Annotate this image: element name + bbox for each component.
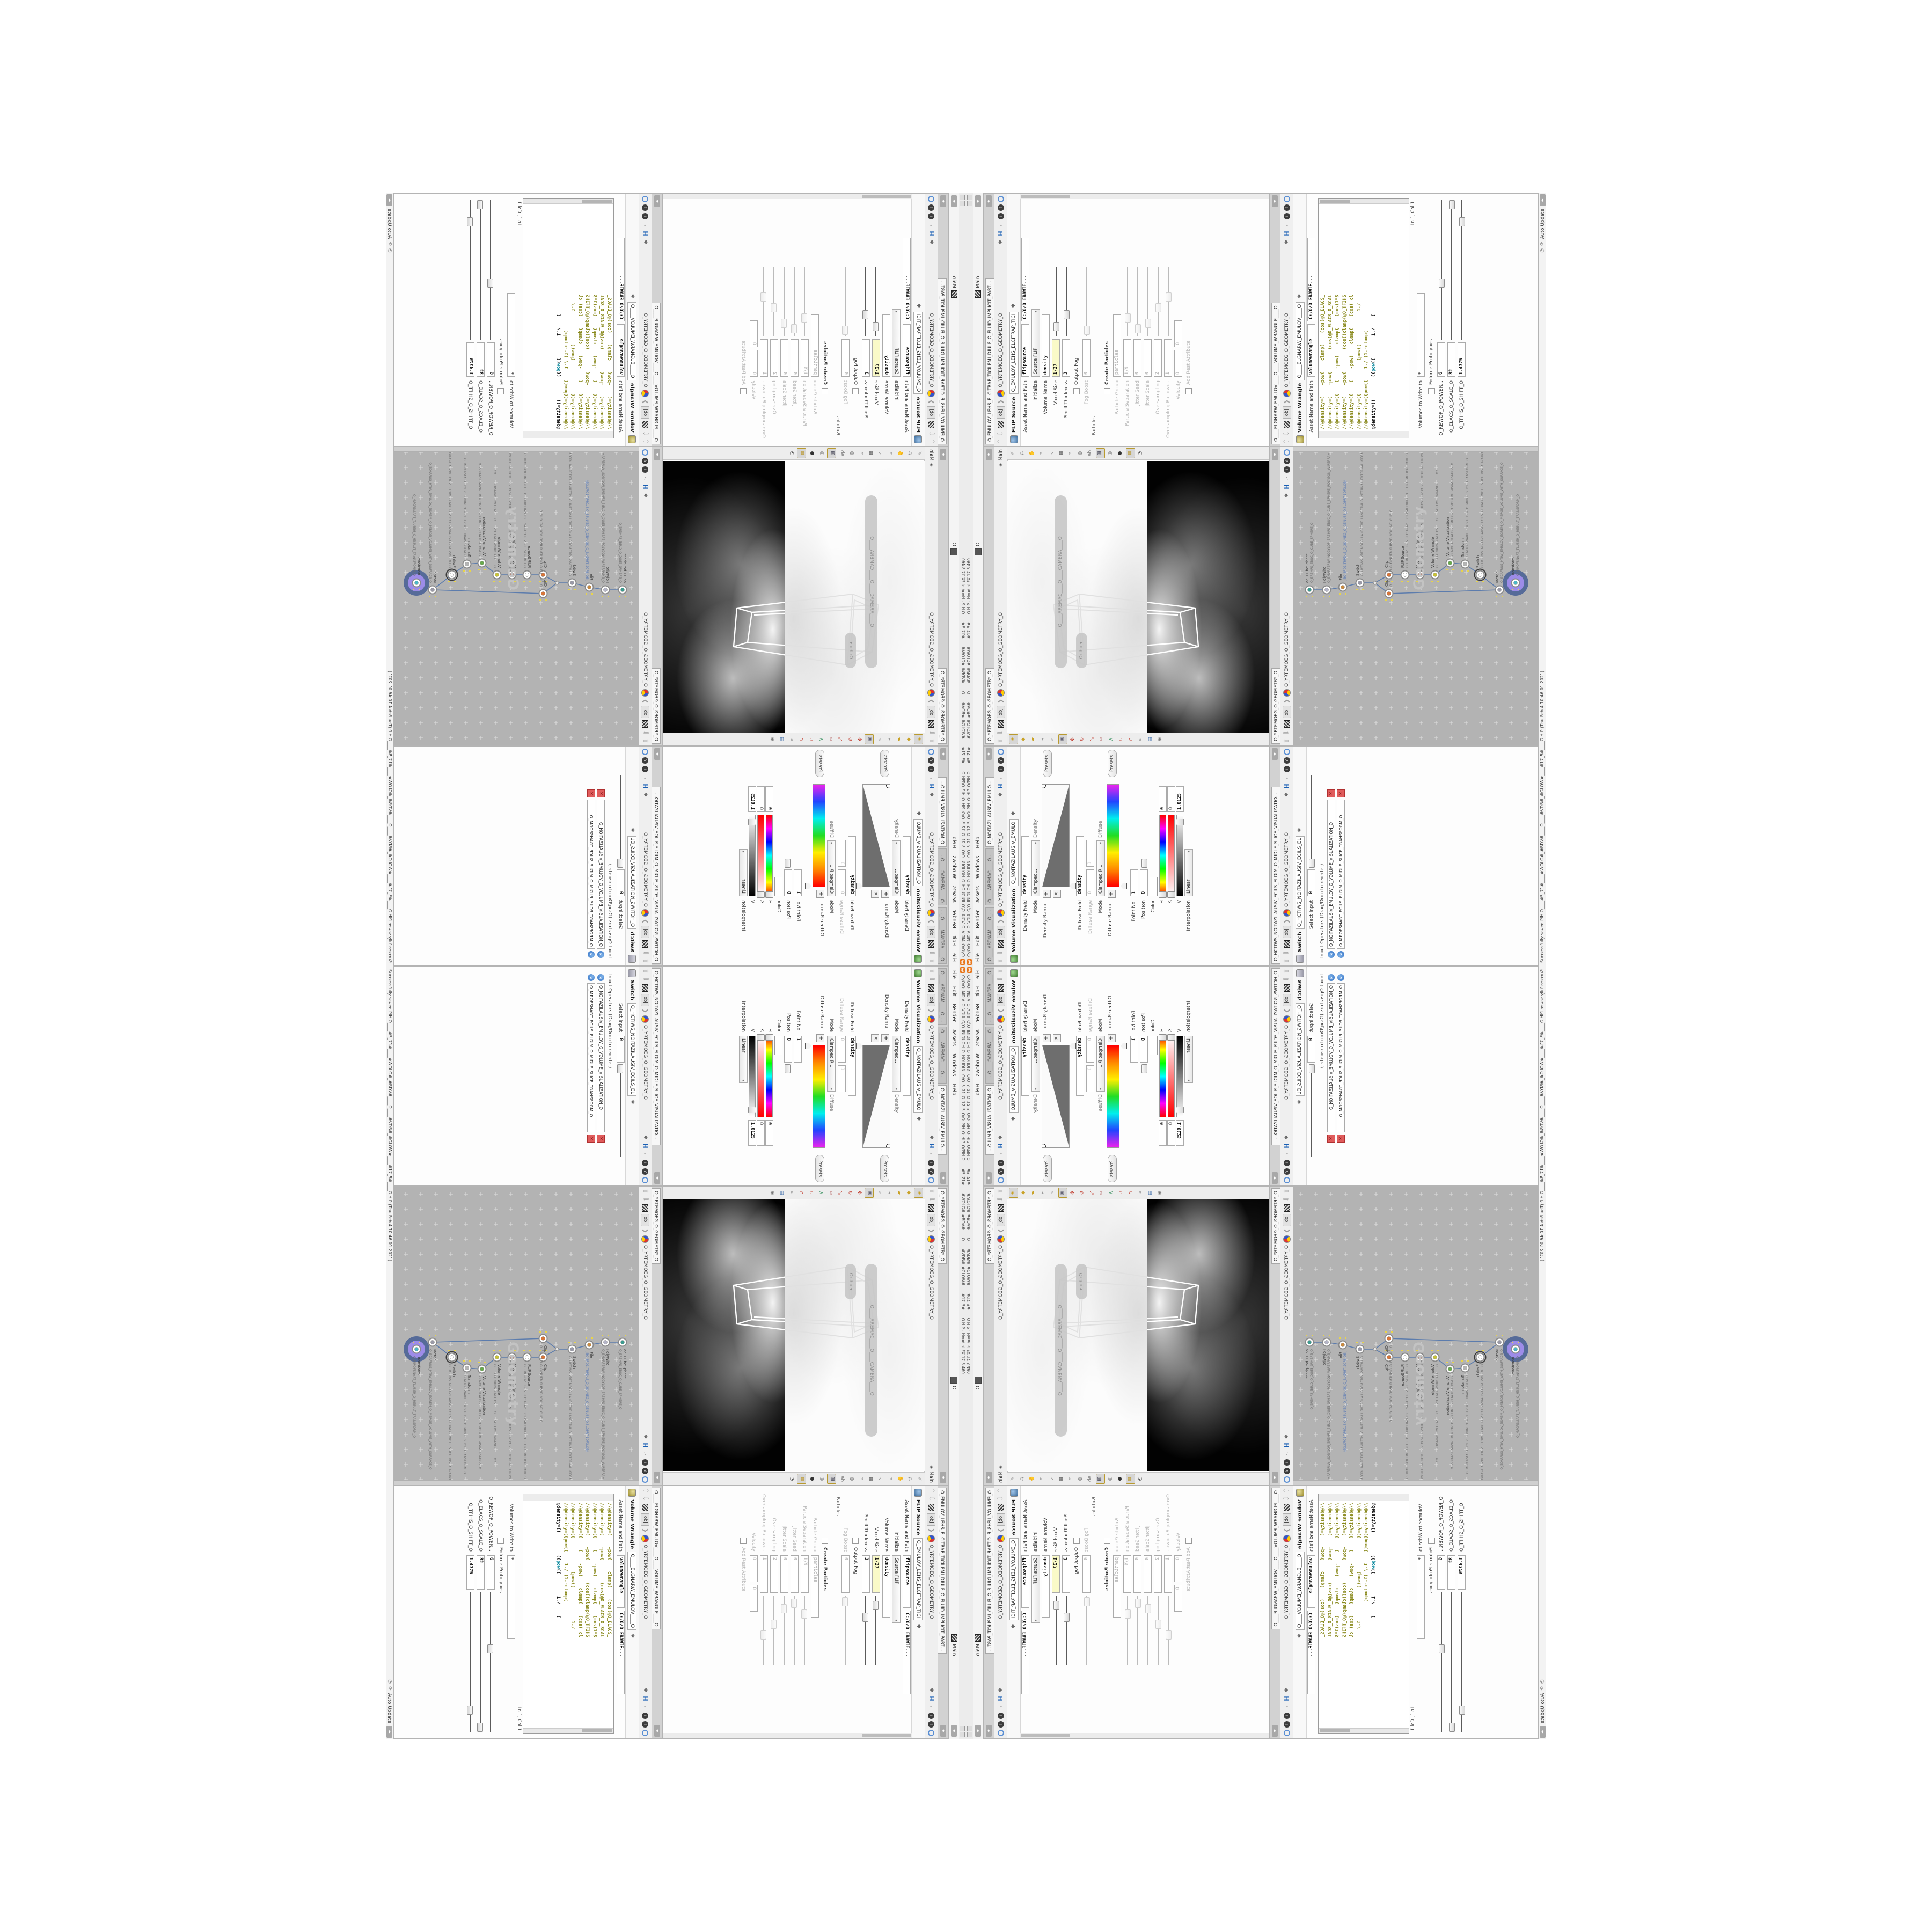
param-slider[interactable] (1135, 267, 1140, 336)
target-icon[interactable] (928, 196, 934, 202)
pinwheel-icon[interactable] (1283, 1535, 1291, 1542)
pane-splitter-icon[interactable]: ◂▸ (986, 195, 992, 207)
position-slider[interactable] (786, 797, 791, 867)
point-no-field[interactable]: 1 (1130, 1036, 1138, 1063)
houdini-h-icon[interactable]: H (998, 1695, 1004, 1702)
camera-pill[interactable]: O____AREMAC____O____CAMERA____O (1055, 495, 1067, 668)
param-field[interactable]: 0 (1174, 1555, 1182, 1582)
ortho-pill[interactable]: Ortho ▾ (1076, 1264, 1087, 1299)
pane-splitter-icon[interactable]: ◂▸ (986, 1472, 992, 1483)
param-field[interactable]: 0 (1082, 339, 1091, 377)
info-icon[interactable]: i (642, 766, 648, 772)
asset-name-field[interactable]: volumewrangle (617, 324, 625, 377)
pane-splitter-icon[interactable]: ◂▸ (1272, 1172, 1278, 1184)
update-mode-selector[interactable]: Auto Update (387, 209, 392, 239)
param-field[interactable]: 1.4375 (1458, 1555, 1466, 1590)
menu-splitter[interactable]: ◂▸ (950, 1725, 958, 1737)
hue-field[interactable]: 0 (766, 1120, 774, 1146)
breadcrumb-path[interactable]: O_YRTEMOEG_O_GEOMETRY_O (642, 1245, 648, 1320)
checkbox[interactable] (498, 1538, 504, 1544)
diffuse-range-min[interactable]: 0 (838, 1036, 846, 1063)
param-field[interactable]: 6 (1437, 342, 1445, 377)
nav-down-icon[interactable]: ⇩ (998, 1496, 1004, 1502)
pinwheel-icon[interactable] (927, 909, 935, 917)
info-icon[interactable]: i (1284, 1160, 1290, 1166)
dark-sphere-icon[interactable]: ● (808, 449, 816, 458)
reorder-arrow-icon[interactable]: ◂ (1337, 951, 1344, 958)
hue-slider[interactable] (766, 815, 773, 896)
breadcrumb-root[interactable]: obj (997, 406, 1005, 419)
param-field[interactable]: 1/27 (872, 339, 880, 377)
nav-up-icon[interactable]: ⇧ (1284, 1488, 1290, 1494)
tab-volume-wrangle[interactable]: O____ELGNARW_EMULOV____O____VOLUME_WRANG… (1271, 1488, 1280, 1629)
scale-tool-icon[interactable]: ⤡ (1088, 735, 1096, 744)
input-operator-field[interactable]: O_NOITAZILAUSIV_EMULOV_O_VOLUME_VISUALIZ… (1327, 800, 1335, 949)
nav-down-icon[interactable]: ⇩ (928, 430, 934, 436)
presets-button[interactable]: Presets (815, 750, 824, 777)
menu-splitter[interactable]: ◂▸ (974, 195, 982, 207)
help-icon[interactable]: ? (642, 1721, 648, 1728)
select-input-field[interactable]: 0 (617, 1036, 625, 1063)
density-field[interactable]: density (903, 1036, 911, 1096)
image-plane-icon[interactable]: ▧ (827, 448, 836, 458)
nav-down-icon[interactable]: ⇩ (1284, 976, 1290, 982)
info-icon[interactable]: i (998, 766, 1004, 772)
target-icon[interactable] (1284, 196, 1290, 202)
checkbox[interactable] (1073, 1538, 1080, 1544)
param-slider[interactable] (1084, 267, 1089, 336)
info-icon[interactable]: i (642, 466, 648, 473)
tab-volume-visualization[interactable]: O_NOITAZILAUSIV_EMULOV_O_VOLUME_VISUALIZ… (985, 1085, 994, 1155)
select-input-field[interactable]: 0 (617, 869, 625, 896)
param-field[interactable]: 2 (770, 339, 778, 377)
ramp-add-button[interactable]: ✚ (816, 890, 824, 898)
tab-network[interactable]: O_YRTEMOEG_O_GEOMETRY_O (1271, 1188, 1280, 1264)
breadcrumb-root[interactable]: obj (641, 406, 649, 419)
density-ramp-widget[interactable] (1042, 784, 1070, 887)
desktop-tab-main[interactable]: Main (974, 276, 982, 298)
menu-edit[interactable]: Edit (975, 936, 981, 946)
param-field[interactable]: flipsource (903, 1555, 911, 1608)
density-mode-dropdown[interactable]: Clamped... (1031, 840, 1040, 896)
param-field[interactable]: 1.4375 (466, 1555, 474, 1590)
flip-scrollbar[interactable] (663, 194, 912, 199)
ramp-marker-icon[interactable] (1121, 883, 1127, 889)
snap-point-icon[interactable]: ∩ (797, 735, 805, 744)
ramp-handle[interactable] (1042, 1144, 1046, 1148)
import-icon[interactable]: ◈ (914, 1188, 923, 1198)
pane-splitter-icon[interactable]: ◂▸ (1272, 1472, 1278, 1483)
pinwheel-icon[interactable] (1283, 689, 1291, 697)
param-field[interactable]: flipsource (1021, 1555, 1029, 1608)
target-icon[interactable] (1284, 749, 1290, 755)
node-name-field[interactable]: O____ELGNARW_EMULOV____O (628, 1552, 637, 1630)
param-slider[interactable] (1439, 1592, 1444, 1732)
point-no-field[interactable]: 1 (1130, 869, 1138, 896)
checkbox[interactable] (498, 388, 504, 394)
help-icon[interactable]: ? (928, 1168, 934, 1175)
nav-down-icon[interactable]: ⇩ (998, 730, 1004, 736)
splitter-grip-icon[interactable]: ◂▸ (1540, 1726, 1546, 1738)
render-view-icon[interactable]: ◉ (768, 735, 776, 744)
magnifier-icon[interactable]: ⌕ (642, 1704, 648, 1710)
asset-path-field[interactable]: C:/O/O_ERAWTF... (1307, 1611, 1315, 1694)
breadcrumb-path[interactable]: O_YRTEMOEG_O_GEOMETRY_O (998, 1025, 1004, 1100)
ruler-icon[interactable]: ⌗ (1038, 449, 1046, 458)
param-field[interactable]: 1.4375 (466, 342, 474, 377)
reorder-arrow-icon[interactable]: ◂ (598, 974, 605, 981)
param-slider[interactable] (468, 200, 473, 340)
menu-render[interactable]: Render (951, 1004, 957, 1022)
param-slider[interactable] (488, 200, 493, 340)
splitter-grip-icon[interactable]: ◂▸ (975, 195, 981, 207)
checkbox[interactable] (1428, 1538, 1435, 1544)
diffuse-range-min[interactable]: 0 (1086, 1036, 1094, 1063)
nav-up-icon[interactable]: ⇧ (998, 958, 1004, 964)
magnifier-icon[interactable]: ⌕ (928, 222, 934, 228)
info-icon[interactable]: i (1284, 1459, 1290, 1466)
pinwheel-icon[interactable] (997, 390, 1005, 397)
ramp-handle[interactable] (886, 1144, 890, 1148)
param-dropdown[interactable]: Source FLIP (892, 309, 901, 377)
houdini-h-icon[interactable]: H (998, 783, 1004, 789)
houdini-h-icon[interactable]: H (1284, 1143, 1290, 1149)
image-plane-icon[interactable]: ▧ (827, 1474, 836, 1484)
density-field[interactable]: density (903, 836, 911, 896)
hand-icon[interactable]: ✋ (896, 449, 904, 458)
select-arrow-icon[interactable]: ➢ (1049, 1188, 1057, 1197)
viewport-canvas[interactable]: O____AREMAC____O____CAMERA____O Ortho ▾ (1007, 1199, 1269, 1471)
select-input-field[interactable]: 0 (1307, 1036, 1315, 1063)
ruler-icon[interactable]: ⌗ (886, 449, 894, 458)
pinwheel-icon[interactable] (641, 689, 649, 697)
diffuse-ramp-widget[interactable] (813, 784, 825, 887)
refresh-icon[interactable]: ⟳ (386, 1686, 393, 1690)
param-slider[interactable] (1064, 1596, 1069, 1665)
param-field[interactable]: 0 (750, 1555, 758, 1582)
param-field[interactable]: C:/O/O_ERAWTF... (1021, 1611, 1029, 1694)
diffuse-mode-dropdown[interactable]: Clamped R... (828, 1036, 836, 1092)
breadcrumb-root[interactable]: obj (927, 926, 935, 938)
tab-switch[interactable]: O_HCTIWS_NOITAZILAUSIV_ECILS_ELDIM_O_MID… (652, 968, 661, 1145)
select-arrow-icon[interactable]: ➢ (875, 1188, 883, 1197)
menu-assets[interactable]: Assets (951, 886, 957, 903)
param-dropdown[interactable]: Source FLIP (892, 1555, 901, 1623)
tab-mantra[interactable]: O____ARTNAM____O____MANTRA____O✕ (985, 907, 994, 964)
tab-switch[interactable]: O_HCTIWS_NOITAZILAUSIV_ECILS_ELDIM_O_MID… (1271, 968, 1280, 1145)
node-name-field[interactable]: O_EMULOV_LEHS_ELCITRAP_TICI (1009, 312, 1019, 394)
reorder-arrow-icon[interactable]: ◂ (588, 974, 595, 981)
magnifier-icon[interactable]: ⌕ (928, 1704, 934, 1710)
delete-input-button[interactable]: ✕ (597, 1135, 605, 1143)
forward-icon[interactable]: ▸ (1137, 1188, 1145, 1197)
input-operator-field[interactable]: O_NOITAZILAUSIV_EMULOV_O_VOLUME_VISUALIZ… (1327, 983, 1335, 1132)
hand-icon[interactable]: ✋ (896, 1474, 904, 1483)
pane-splitter-icon[interactable]: ◂▸ (940, 748, 946, 760)
select-input-slider[interactable] (618, 1065, 623, 1157)
delete-input-button[interactable]: ✕ (597, 789, 605, 797)
value-slider[interactable] (1176, 815, 1183, 896)
param-field[interactable]: 0 (780, 1555, 788, 1593)
pane-splitter-icon[interactable]: ◂▸ (940, 1172, 946, 1184)
desktop-tab-o[interactable]: O (974, 543, 982, 555)
param-slider[interactable] (468, 1592, 473, 1732)
houdini-h-icon[interactable]: H (1284, 484, 1290, 490)
breadcrumb-path[interactable]: O_YRTEMOEG_O_GEOMETRY_O (1284, 832, 1290, 907)
hue-slider[interactable] (1159, 1036, 1166, 1117)
breadcrumb-root[interactable]: obj (1283, 406, 1291, 419)
render-view-icon[interactable]: ◉ (1156, 735, 1164, 744)
tab-flip-source[interactable]: O_EMULOV_LEHS_ELCITRAP_TICILPMI_DIULF_O_… (938, 1488, 947, 1654)
hue-slider[interactable] (1159, 815, 1166, 896)
help-icon[interactable]: ? (642, 757, 648, 764)
param-field[interactable]: 32 (1447, 342, 1455, 377)
param-slider[interactable] (782, 267, 787, 336)
diffuse-field[interactable]: density (1076, 836, 1084, 896)
presets-button[interactable]: Presets (880, 1155, 889, 1182)
param-field[interactable]: 3 (862, 1555, 870, 1593)
param-slider[interactable] (802, 1596, 807, 1665)
gear-icon[interactable]: ✱ (915, 1623, 921, 1629)
export-icon[interactable]: ◆ (1020, 1188, 1028, 1197)
density-ramp-widget[interactable] (1042, 1045, 1070, 1148)
forward-icon[interactable]: ▸ (787, 735, 795, 744)
info-icon[interactable]: i (998, 213, 1004, 219)
target-icon[interactable] (642, 196, 648, 202)
density-field[interactable]: density (1021, 1036, 1029, 1096)
pinwheel-icon[interactable] (641, 1235, 649, 1243)
nav-down-icon[interactable]: ⇩ (642, 730, 648, 736)
param-field[interactable]: 1 (760, 1555, 768, 1593)
bbox-icon[interactable]: ▦ (867, 449, 875, 458)
maximize-button[interactable] (967, 195, 972, 200)
breadcrumb-root[interactable]: obj (997, 994, 1005, 1006)
scale-tool-icon[interactable]: ⤡ (1088, 1188, 1096, 1197)
nav-down-icon[interactable]: ⇩ (998, 976, 1004, 982)
folder-icon[interactable]: ▰ (895, 1188, 903, 1197)
gear-icon[interactable]: ✱ (928, 792, 934, 798)
diffuse-range-min[interactable]: 0 (1086, 869, 1094, 896)
translate-tool-icon[interactable]: ✥ (855, 735, 863, 744)
param-field[interactable]: 32 (477, 1555, 485, 1590)
pen-icon[interactable]: ✐ (915, 1474, 923, 1483)
delete-input-button[interactable]: ✕ (1327, 789, 1335, 797)
node-name-field[interactable]: O____ELGNARW_EMULOV____O (628, 302, 637, 380)
menu-windows[interactable]: Windows (951, 856, 957, 879)
export-icon[interactable]: ◆ (1020, 735, 1028, 744)
diffuse-ramp-widget[interactable] (813, 1045, 825, 1148)
checkbox[interactable] (822, 388, 829, 394)
interpolation-dropdown[interactable]: Linear (1184, 849, 1193, 896)
param-field[interactable]: flipsource (1021, 324, 1029, 377)
param-field[interactable]: 0 (841, 339, 850, 377)
breadcrumb-path[interactable]: O_YRTEMOEG_O_GEOMETRY_O (642, 1025, 648, 1100)
menu-help[interactable]: Help (975, 837, 981, 848)
help-icon[interactable]: ? (642, 1468, 648, 1474)
pose-tool-icon[interactable]: ʎ (1108, 735, 1116, 744)
param-field[interactable]: 0 (791, 339, 799, 377)
param-slider[interactable] (1125, 1596, 1130, 1665)
nav-down-icon[interactable]: ⇩ (998, 1196, 1004, 1202)
ramp-marker-icon[interactable] (805, 1043, 811, 1049)
tab-scene-view[interactable]: O_YRTEMOEG_O_GEOMETRY_O (985, 1188, 994, 1264)
input-operator-field[interactable]: O_NOITAZILAUSIV_EMULOV_O_VOLUME_VISUALIZ… (597, 983, 605, 1132)
position-field[interactable]: 0 (785, 869, 793, 896)
saturation-field[interactable]: 0 (1167, 786, 1175, 812)
param-slider[interactable] (1439, 200, 1444, 340)
breadcrumb-root[interactable]: obj (927, 994, 935, 1006)
minimize-button[interactable] (960, 201, 965, 206)
magnifier-icon[interactable]: ⌕ (642, 1451, 648, 1457)
houdini-h-icon[interactable]: H (928, 1143, 934, 1149)
param-slider[interactable] (843, 1596, 848, 1665)
diffuse-mode-dropdown[interactable]: Clamped R... (1096, 1036, 1105, 1092)
ramp-add-button[interactable]: ✚ (1043, 1034, 1051, 1042)
info-icon[interactable]: i (928, 213, 934, 219)
node-name-field[interactable]: O_EMULOV_LEHS_ELCITRAP_TICI (914, 312, 923, 394)
houdini-h-icon[interactable]: H (998, 1143, 1004, 1149)
gear-icon[interactable]: ✱ (629, 827, 635, 833)
gear-icon[interactable]: ✱ (998, 1134, 1004, 1140)
breadcrumb-path[interactable]: O_YRTEMOEG_O_GEOMETRY_O (928, 1545, 934, 1619)
nav-up-icon[interactable]: ⇧ (1284, 738, 1290, 744)
gear-icon[interactable]: ✱ (642, 1433, 648, 1440)
breadcrumb-root[interactable]: obj (927, 1214, 935, 1226)
pinwheel-icon[interactable] (641, 390, 649, 397)
param-field[interactable]: 3 (862, 339, 870, 377)
breadcrumb-path[interactable]: O_YRTEMOEG_O_GEOMETRY_O (642, 832, 648, 907)
magnifier-icon[interactable]: ⌕ (998, 222, 1004, 228)
nav-up-icon[interactable]: ⇧ (1284, 438, 1290, 444)
breadcrumb-path[interactable]: O_YRTEMOEG_O_GEOMETRY_O (1284, 1025, 1290, 1100)
code-scrollbar[interactable] (523, 1728, 613, 1733)
target-icon[interactable] (928, 1177, 934, 1183)
update-mode-selector[interactable]: Auto Update (1540, 1693, 1546, 1723)
menu-file[interactable]: File (951, 970, 957, 979)
param-field[interactable]: 1/9 (801, 1555, 809, 1593)
param-slider[interactable] (1459, 1592, 1464, 1732)
param-field[interactable]: 1 (1164, 339, 1172, 377)
flip-scrollbar[interactable] (1020, 1733, 1269, 1738)
scale-tool-icon[interactable]: ⤡ (836, 735, 844, 744)
presets-button[interactable]: Presets (815, 1155, 824, 1182)
param-slider[interactable] (863, 1596, 868, 1665)
pane-splitter-icon[interactable]: ◂▸ (986, 1725, 992, 1737)
node-name-field[interactable]: O_NOITAZILAUSIV_EMULO (914, 1046, 923, 1113)
help-icon[interactable]: ? (928, 204, 934, 211)
param-field[interactable]: particles (811, 314, 819, 377)
gear-icon[interactable]: ✱ (1284, 792, 1290, 798)
ramp-add-button[interactable]: ✚ (1108, 1034, 1116, 1042)
gear-icon[interactable]: ✱ (1284, 1687, 1290, 1693)
text-abc-icon[interactable]: ab (838, 1474, 846, 1483)
nav-up-icon[interactable]: ⇧ (1284, 1188, 1290, 1194)
help-icon[interactable]: ? (642, 204, 648, 211)
param-field[interactable]: 0 (1082, 1555, 1091, 1593)
network-canvas[interactable]: ae_CubeSphereO_EREHPS_EBUC_O_CUBE_SPHERE… (394, 447, 639, 745)
footprint-icon[interactable]: ⁂ (1019, 449, 1027, 458)
param-field[interactable]: 6 (487, 1555, 495, 1590)
breadcrumb-root[interactable]: obj (1283, 706, 1291, 718)
param-field[interactable]: 0 (1133, 1555, 1141, 1593)
view-tool-icon[interactable]: ▣ (865, 734, 874, 744)
camera-pill[interactable]: O____AREMAC____O____CAMERA____O (1055, 1264, 1067, 1437)
param-slider[interactable] (1155, 1596, 1160, 1665)
pane-splitter-icon[interactable]: ◂▸ (986, 748, 992, 760)
node-name-field[interactable]: O_EMULOV_LEHS_ELCITRAP_TICI (914, 1538, 923, 1621)
breadcrumb-root[interactable]: obj (1283, 1214, 1291, 1226)
breadcrumb-path[interactable]: O_YRTEMOEG_O_GEOMETRY_O (1284, 1245, 1290, 1320)
pane-splitter-icon[interactable]: ◂▸ (940, 195, 946, 207)
param-field[interactable]: particles (1113, 1555, 1121, 1618)
diffuse-ramp-widget[interactable] (1107, 784, 1119, 887)
update-mode-selector[interactable]: Auto Update (387, 1693, 392, 1723)
magnifier-icon[interactable]: ⌕ (1284, 1451, 1290, 1457)
checkbox[interactable] (1428, 388, 1435, 394)
interpolation-dropdown[interactable]: Linear (739, 849, 748, 896)
target-icon[interactable] (1284, 449, 1290, 456)
tab-volume-wrangle[interactable]: O____ELGNARW_EMULOV____O____VOLUME_WRANG… (652, 1488, 661, 1629)
density-mode-dropdown[interactable]: Clamped... (1031, 1036, 1040, 1092)
param-slider[interactable] (802, 267, 807, 336)
vex-code-editor[interactable]: //@density=( -pow( clamp( (cos(@O_ELACS_… (1318, 1494, 1409, 1734)
interpolation-dropdown[interactable]: Linear (1184, 1036, 1193, 1083)
maximize-button[interactable] (960, 1732, 965, 1737)
param-field[interactable]: flipsource (903, 324, 911, 377)
pinwheel-icon[interactable] (641, 909, 649, 917)
menu-assets[interactable]: Assets (975, 886, 981, 903)
diffuse-range-max[interactable]: 1 (1086, 1065, 1094, 1092)
color-swatch[interactable] (1150, 1036, 1158, 1055)
cut-tool-icon[interactable]: ✄ (826, 735, 834, 744)
hand-icon[interactable]: ✋ (1028, 449, 1036, 458)
breadcrumb-path[interactable]: O_YRTEMOEG_O_GEOMETRY_O (998, 1245, 1004, 1320)
help-icon[interactable]: ? (998, 1168, 1004, 1175)
pinwheel-icon[interactable] (927, 390, 935, 397)
pinwheel-icon[interactable] (997, 1535, 1005, 1542)
param-field[interactable]: 1/27 (1052, 1555, 1060, 1593)
vex-code-editor[interactable]: //@density=( -pow( clamp( (cos(@O_ELACS_… (1318, 198, 1409, 438)
param-field[interactable]: 6 (487, 342, 495, 377)
breadcrumb-path[interactable]: O_YRTEMOEG_O_GEOMETRY_O (642, 1545, 648, 1619)
magnifier-icon[interactable]: ⌕ (928, 1151, 934, 1158)
ortho-pill[interactable]: Ortho ▾ (845, 633, 856, 668)
param-slider[interactable] (863, 267, 868, 336)
param-slider[interactable] (1125, 267, 1130, 336)
desktop-tab-o[interactable]: O (974, 1377, 982, 1389)
info-icon[interactable]: i (642, 213, 648, 219)
breadcrumb-root[interactable]: obj (997, 926, 1005, 938)
breadcrumb-path[interactable]: O_YRTEMOEG_O_GEOMETRY_O (998, 832, 1004, 907)
dark-sphere-icon[interactable]: ● (808, 1474, 816, 1483)
target-icon[interactable] (998, 196, 1004, 202)
target-icon[interactable] (642, 749, 648, 755)
menu-help[interactable]: Help (975, 1084, 981, 1095)
breadcrumb-root[interactable]: obj (927, 706, 935, 718)
nav-down-icon[interactable]: ⇩ (928, 730, 934, 736)
breadcrumb-root[interactable]: obj (1283, 926, 1291, 938)
breadcrumb-path[interactable]: O_YRTEMOEG_O_GEOMETRY_O (928, 1245, 934, 1320)
delete-input-button[interactable]: ✕ (1337, 1135, 1345, 1143)
gear-icon[interactable]: ✱ (1297, 827, 1303, 833)
pinwheel-icon[interactable] (927, 1015, 935, 1023)
nav-up-icon[interactable]: ⇧ (928, 958, 934, 964)
density-ramp-widget[interactable] (862, 1045, 890, 1148)
minimize-button[interactable] (967, 201, 972, 206)
help-icon[interactable]: ? (1284, 757, 1290, 764)
param-field[interactable]: 32 (477, 342, 485, 377)
hue-field[interactable]: 0 (1159, 1120, 1167, 1146)
